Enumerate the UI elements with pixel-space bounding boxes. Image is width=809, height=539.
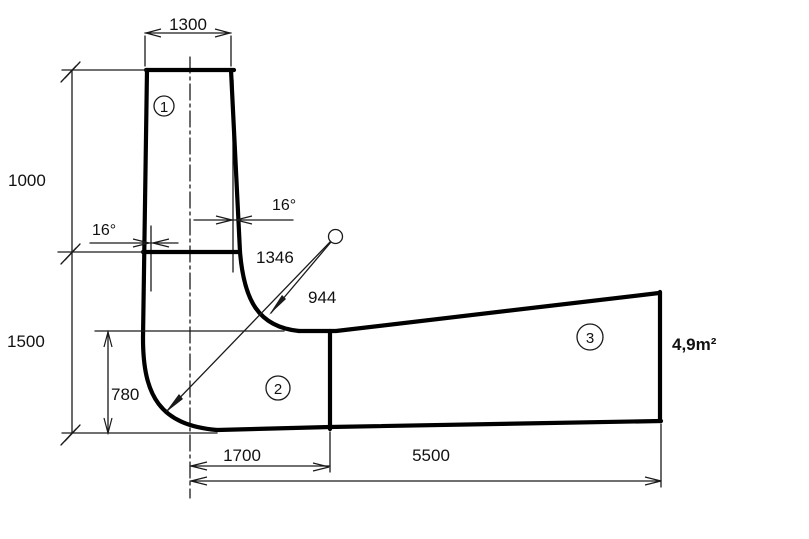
dim-bottom-near-arrow-right bbox=[313, 463, 329, 471]
radius-outer-leader-line bbox=[167, 241, 331, 411]
radius-outer-arrowhead bbox=[165, 394, 183, 413]
balloon-section-1-number: 1 bbox=[160, 99, 168, 116]
dim-bottom-near-label: 1700 bbox=[223, 446, 261, 465]
dim-inner-height-label: 780 bbox=[111, 385, 139, 404]
duct-elbow-drawing: 1300 1000 1500 780 16° 16° 1346 944 1700… bbox=[0, 0, 809, 539]
dim-lower-height-label: 1500 bbox=[7, 332, 45, 351]
dim-left-tick-bottom bbox=[61, 425, 80, 445]
duct-top-edge-section3 bbox=[299, 293, 659, 331]
angle-left-label: 16° bbox=[92, 222, 116, 239]
angle-right-label: 16° bbox=[272, 197, 296, 214]
dim-left-tick-top bbox=[61, 62, 80, 82]
balloon-section-2-number: 2 bbox=[274, 381, 282, 398]
duct-bottom-edge bbox=[217, 421, 661, 430]
dim-bottom-far-label: 5500 bbox=[412, 446, 450, 465]
balloon-section-3: 3 bbox=[577, 324, 603, 350]
radius-inner-arrowhead bbox=[269, 295, 286, 315]
dim-radius-inner-label: 944 bbox=[308, 288, 336, 307]
balloon-section-1: 1 bbox=[154, 96, 174, 116]
balloon-section-3-number: 3 bbox=[586, 330, 594, 347]
outlet-area-label: 4,9m² bbox=[672, 335, 717, 354]
dim-upper-height-label: 1000 bbox=[8, 171, 46, 190]
technical-drawing-canvas: 1300 1000 1500 780 16° 16° 1346 944 1700… bbox=[0, 0, 809, 539]
dim-left-tick-mid bbox=[61, 244, 80, 264]
balloon-section-2: 2 bbox=[266, 376, 290, 400]
dim-radius-outer-label: 1346 bbox=[256, 248, 294, 267]
radius-center-marker bbox=[329, 230, 343, 244]
dim-top-width-label: 1300 bbox=[169, 15, 207, 34]
